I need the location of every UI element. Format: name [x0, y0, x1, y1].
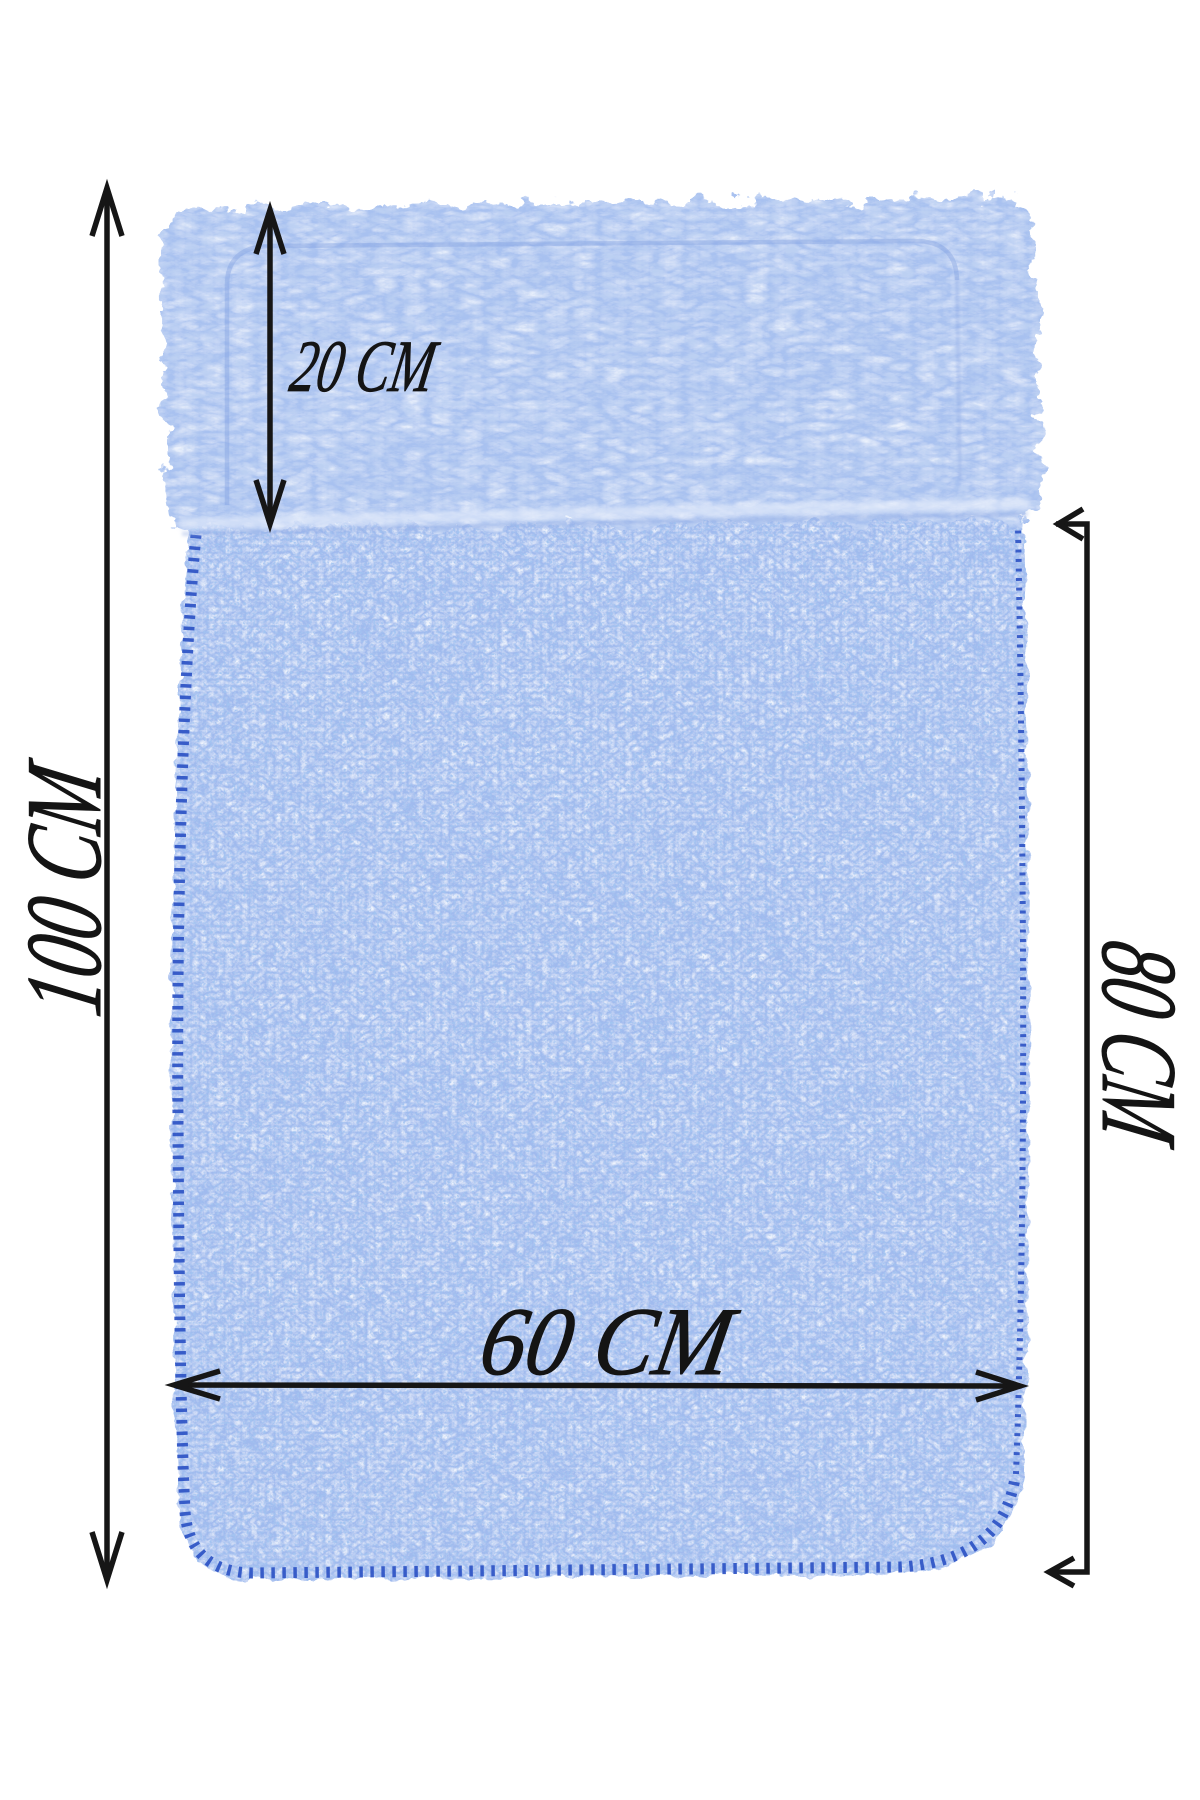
svg-text:100 CM: 100 CM	[5, 753, 124, 1023]
svg-text:20 CM: 20 CM	[285, 324, 445, 407]
svg-text:60 CM: 60 CM	[473, 1289, 746, 1396]
svg-text:80 CM: 80 CM	[1078, 933, 1197, 1154]
